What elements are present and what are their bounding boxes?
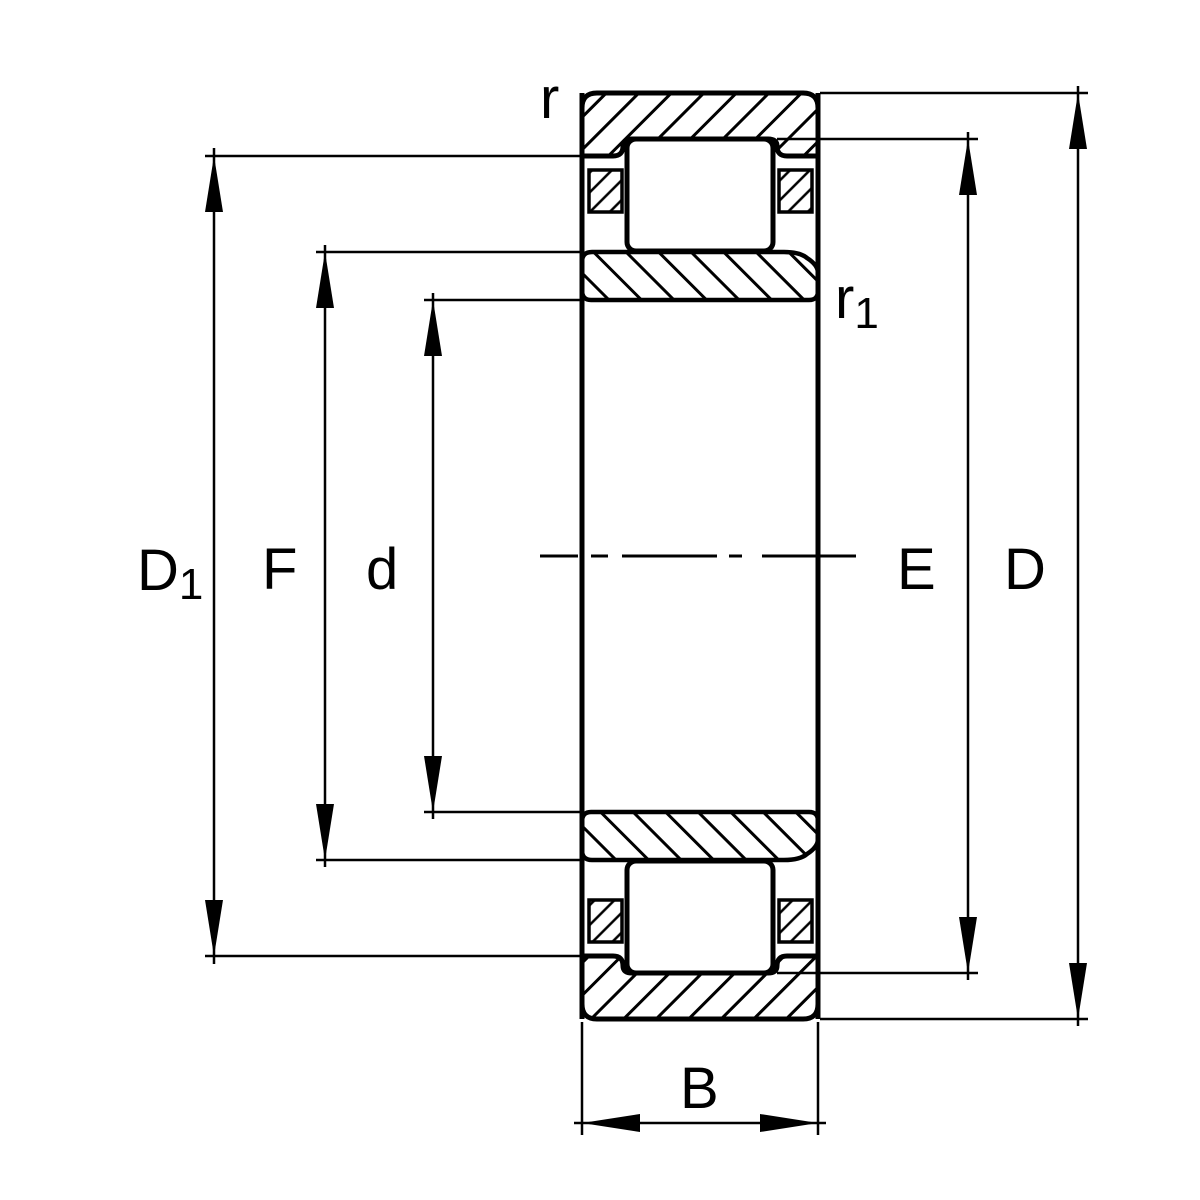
inner-ring-bottom-section bbox=[582, 812, 818, 860]
cage-bar-top-right bbox=[779, 170, 812, 212]
arrowhead-up bbox=[1069, 93, 1087, 149]
bearing-section-drawing: D1 F d E D B bbox=[0, 0, 1200, 1200]
arrowhead-left bbox=[582, 1114, 640, 1132]
cage-bar-bottom-right bbox=[779, 900, 812, 942]
arrowhead-down bbox=[959, 917, 977, 973]
dimension-label-D: D bbox=[1004, 537, 1046, 602]
arrowhead-down bbox=[316, 804, 334, 860]
arrowhead-up bbox=[316, 252, 334, 308]
cage-bar-top-left bbox=[589, 170, 622, 212]
drawing-canvas: D1 F d E D B bbox=[0, 0, 1200, 1200]
dimension-label-d: d bbox=[366, 537, 398, 602]
dimension-label-B: B bbox=[680, 1056, 719, 1121]
chamfer-label-r: r bbox=[540, 66, 559, 131]
arrowhead-up bbox=[424, 300, 442, 356]
arrowhead-down bbox=[1069, 963, 1087, 1019]
cage-bar-bottom-left bbox=[589, 900, 622, 942]
arrowhead-down bbox=[424, 756, 442, 812]
arrowhead-up bbox=[959, 139, 977, 195]
arrowhead-up bbox=[205, 156, 223, 212]
dimension-label-E: E bbox=[897, 537, 936, 602]
dimension-D bbox=[820, 86, 1088, 1026]
roller-bottom bbox=[627, 861, 773, 973]
arrowhead-right bbox=[760, 1114, 818, 1132]
arrowhead-down bbox=[205, 900, 223, 956]
roller-top bbox=[627, 139, 773, 251]
dimension-label-D1: D1 bbox=[137, 538, 203, 609]
chamfer-label-r1: r1 bbox=[835, 266, 879, 338]
dimension-label-F: F bbox=[262, 537, 297, 602]
bearing-section bbox=[540, 93, 856, 1019]
inner-ring-top-section bbox=[582, 252, 818, 300]
